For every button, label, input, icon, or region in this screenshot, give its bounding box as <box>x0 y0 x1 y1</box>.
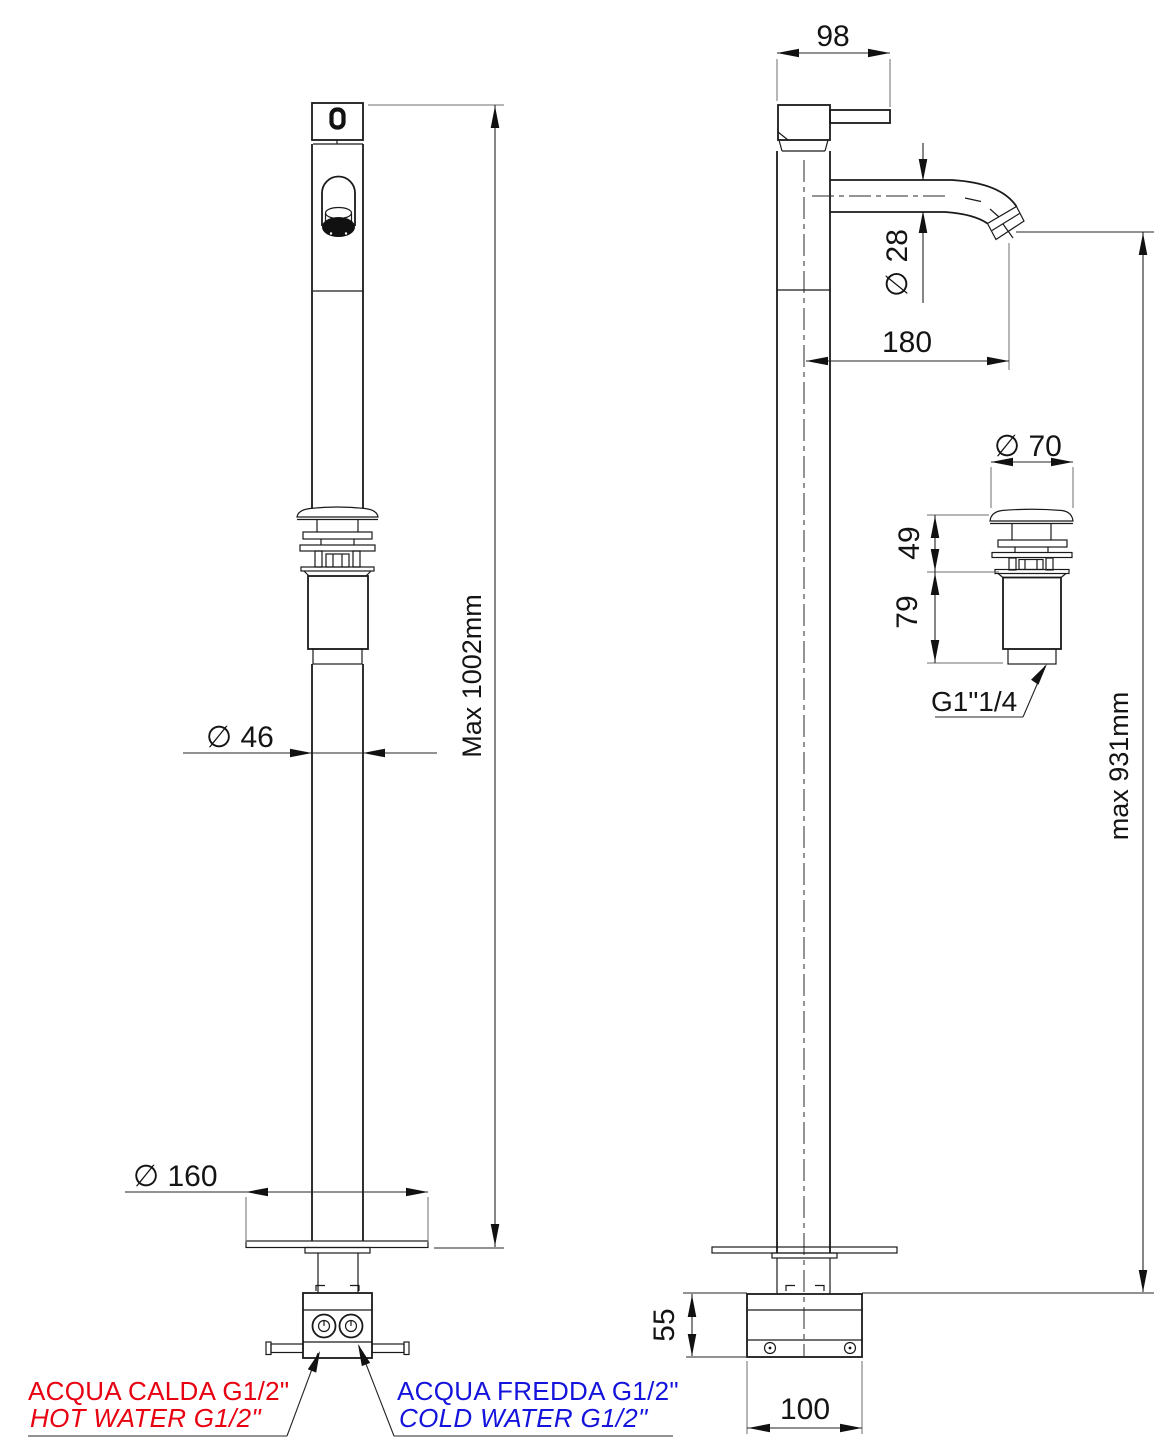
dim-spout-reach: 180 <box>882 326 932 359</box>
hot-water-label-it: ACQUA CALDA G1/2" <box>28 1376 289 1406</box>
dim-drain-thread: G1"1/4 <box>931 686 1017 717</box>
cold-water-label: ACQUA FREDDA G1/2" COLD WATER G1/2" <box>358 1344 679 1436</box>
handle-lever <box>830 110 890 123</box>
dim-drain-upper-height: 49 <box>893 526 926 559</box>
dim-front-height: Max 1002mm <box>457 594 487 758</box>
front-dimensions: Max 1002mm ∅ 46 ∅ 160 <box>125 105 504 1248</box>
handle-side <box>778 105 890 151</box>
mounting-tab-left <box>271 1344 303 1353</box>
dim-base-plate-diameter: ∅ 160 <box>133 1160 218 1193</box>
faucet-technical-drawing: Max 1002mm ∅ 46 ∅ 160 <box>0 0 1176 1452</box>
drain-thread-end <box>1008 649 1056 664</box>
dim-box-height: 55 <box>648 1308 681 1341</box>
side-view <box>683 105 1154 1357</box>
dim-spout-diameter: ∅ 28 <box>881 229 914 297</box>
dim-drain-cap-diameter: ∅ 70 <box>994 430 1062 463</box>
spout-outlet-front <box>322 177 355 238</box>
dim-column-diameter: ∅ 46 <box>206 721 274 754</box>
dim-handle-width: 98 <box>816 20 849 53</box>
dim-box-width: 100 <box>780 1393 830 1426</box>
hot-water-label: ACQUA CALDA G1/2" HOT WATER G1/2" <box>28 1351 320 1436</box>
drain-detail: ∅ 70 49 79 G1"1/4 <box>891 430 1073 717</box>
hot-water-label-en: HOT WATER G1/2" <box>30 1403 262 1433</box>
handle-slot <box>332 110 344 128</box>
aerator <box>322 217 355 237</box>
mounting-tab-right <box>372 1344 404 1353</box>
dim-drain-body-height: 79 <box>891 595 924 628</box>
side-dimensions: 98 ∅ 28 180 max 931mm 55 100 <box>648 20 1154 1434</box>
spout-side <box>812 180 1024 240</box>
cold-water-label-it: ACQUA FREDDA G1/2" <box>397 1376 679 1406</box>
cold-water-label-en: COLD WATER G1/2" <box>399 1403 649 1433</box>
floor-plate-front <box>246 1241 428 1293</box>
connection-box-front <box>266 1293 409 1358</box>
dim-spout-height: max 931mm <box>1104 692 1134 841</box>
technical-drawing-page: Max 1002mm ∅ 46 ∅ 160 <box>0 0 1176 1452</box>
floor-plate-side <box>683 1247 1154 1294</box>
popup-waste-front <box>297 507 378 664</box>
